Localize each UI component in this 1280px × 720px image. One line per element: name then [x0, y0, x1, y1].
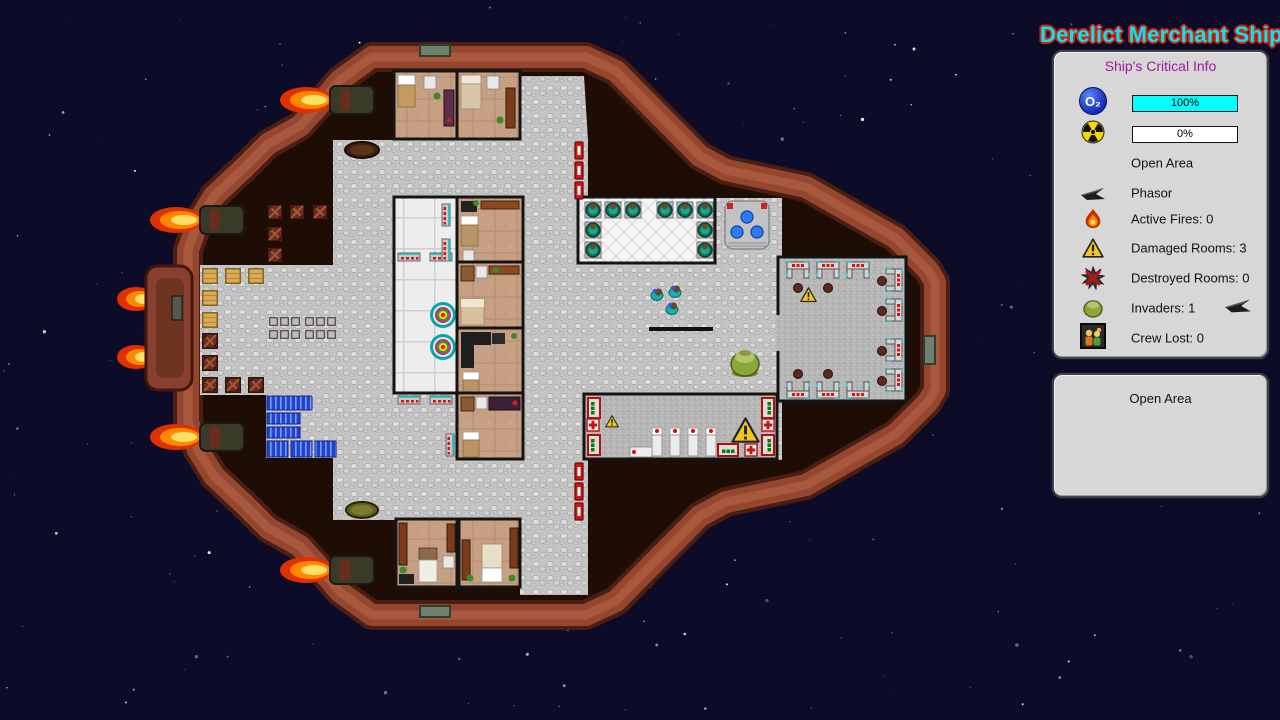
room-bedroom-mid-2[interactable]	[457, 262, 523, 328]
hover-info-panel: Open Area	[1052, 373, 1269, 498]
med-console[interactable]	[762, 435, 774, 455]
room-bedroom-bottom-2[interactable]	[459, 519, 520, 587]
page-title: Derelict Merchant Ship	[1040, 22, 1280, 48]
radiation-value: 0%	[1133, 127, 1237, 142]
medkit[interactable]	[745, 444, 757, 456]
room-bedroom-bottom-1[interactable]	[396, 519, 457, 587]
warning-icon	[1082, 238, 1104, 258]
room-medbay[interactable]	[584, 394, 777, 459]
radiation-bar: 0%	[1132, 126, 1238, 143]
room-bedroom-top-2[interactable]	[457, 71, 520, 139]
room-bedroom-top-1[interactable]	[394, 71, 457, 139]
invaders-label: Invaders: 1	[1131, 301, 1195, 316]
med-console[interactable]	[718, 444, 738, 456]
med-console[interactable]	[588, 435, 600, 455]
toilet	[697, 222, 713, 238]
medkit[interactable]	[587, 419, 599, 431]
active-fires-label: Active Fires: 0	[1131, 212, 1213, 227]
damaged-rooms-row: Damaged Rooms: 3	[1054, 235, 1267, 261]
destroyed-icon	[1081, 266, 1105, 290]
room-lounge-mid[interactable]	[457, 328, 523, 394]
toilet	[697, 242, 713, 258]
phasor-icon	[1080, 186, 1106, 201]
toilet	[605, 202, 621, 218]
room-bathroom[interactable]	[578, 197, 715, 263]
damaged-rooms-label: Damaged Rooms: 3	[1131, 241, 1247, 256]
destroyed-rooms-label: Destroyed Rooms: 0	[1131, 271, 1250, 286]
panel-heading: Ship's Critical Info	[1054, 58, 1267, 74]
floor-rug-top	[345, 142, 379, 158]
critical-info-panel: Ship's Critical Info O₂ 100% 0% Open Are…	[1052, 50, 1269, 359]
selected-area-label: Open Area	[1131, 156, 1193, 171]
hull-hatch-right	[924, 336, 935, 364]
toilet	[677, 202, 693, 218]
med-console[interactable]	[762, 398, 774, 418]
hull-hatch-top	[420, 45, 450, 56]
fire-icon	[1082, 208, 1104, 230]
toilet	[697, 202, 713, 218]
weapon-label: Phasor	[1131, 186, 1172, 201]
toilet	[585, 242, 601, 258]
room-bridge-consoles[interactable]	[775, 257, 906, 401]
crew-lost-label: Crew Lost: 0	[1131, 331, 1204, 346]
toilet	[585, 202, 601, 218]
teleporter-pad[interactable]	[430, 334, 456, 360]
medkit[interactable]	[762, 419, 774, 431]
invaders-row: Invaders: 1	[1054, 295, 1267, 321]
weapon-row[interactable]: Phasor	[1054, 180, 1267, 206]
floor-rug-bottom	[346, 502, 378, 518]
toilet	[657, 202, 673, 218]
crew-lost-icon	[1080, 323, 1106, 349]
oxygen-value: 100%	[1133, 96, 1237, 111]
toilet	[585, 222, 601, 238]
oxygen-row: O₂ 100%	[1054, 88, 1267, 118]
wall-segment	[649, 327, 713, 331]
selected-area-row: Open Area	[1054, 150, 1267, 176]
phasor-icon[interactable]	[1224, 298, 1252, 314]
med-console[interactable]	[588, 398, 600, 418]
radiation-row: 0%	[1054, 119, 1267, 149]
sink-unit[interactable]	[725, 201, 769, 249]
room-bedroom-mid-3[interactable]	[457, 393, 523, 459]
engine-nose-block	[117, 266, 192, 390]
radiation-icon	[1081, 120, 1105, 144]
room-bedroom-mid-1[interactable]	[457, 197, 523, 263]
toilet	[625, 202, 641, 218]
o2-icon: O₂	[1079, 87, 1107, 115]
hull-hatch-bottom	[420, 606, 450, 617]
active-fires-row: Active Fires: 0	[1054, 206, 1267, 232]
teleporter-pad[interactable]	[430, 302, 456, 328]
oxygen-bar: 100%	[1132, 95, 1238, 112]
destroyed-rooms-row: Destroyed Rooms: 0	[1054, 265, 1267, 291]
hover-area-label: Open Area	[1054, 391, 1267, 406]
invader-icon	[1083, 298, 1103, 318]
game-screen: Derelict Merchant Ship Ship's Critical I…	[0, 0, 1280, 720]
crew-lost-row: Crew Lost: 0	[1054, 323, 1267, 353]
